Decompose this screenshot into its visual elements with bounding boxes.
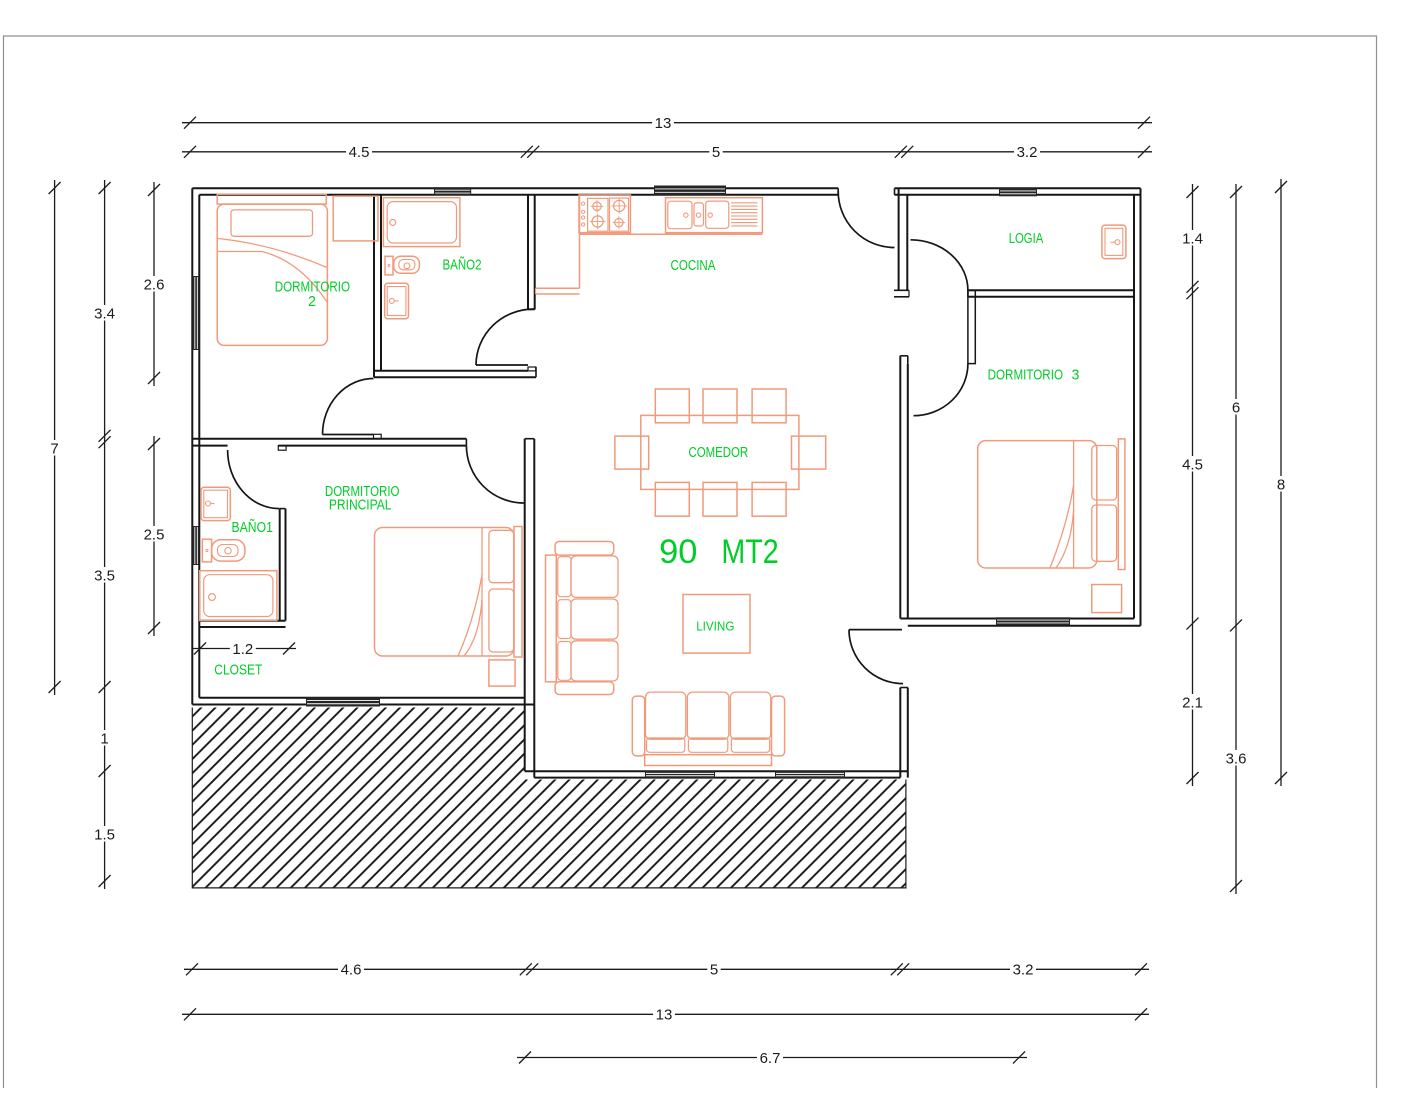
svg-text:4.6: 4.6 xyxy=(341,962,362,979)
svg-text:LOGIA: LOGIA xyxy=(1009,231,1044,247)
svg-text:1: 1 xyxy=(100,730,108,747)
svg-text:CLOSET: CLOSET xyxy=(214,663,262,679)
svg-text:1.4: 1.4 xyxy=(1182,230,1203,247)
svg-text:2: 2 xyxy=(308,294,316,310)
svg-text:2.1: 2.1 xyxy=(1182,694,1203,711)
svg-text:4.5: 4.5 xyxy=(1182,456,1203,473)
svg-text:3.5: 3.5 xyxy=(94,567,115,584)
svg-text:90: 90 xyxy=(659,533,697,571)
svg-text:3: 3 xyxy=(1072,368,1080,384)
svg-text:1.2: 1.2 xyxy=(232,641,253,658)
svg-text:3.2: 3.2 xyxy=(1017,144,1038,161)
svg-text:13: 13 xyxy=(655,115,672,132)
svg-text:13: 13 xyxy=(656,1007,673,1024)
svg-text:2.6: 2.6 xyxy=(144,276,165,293)
svg-text:LIVING: LIVING xyxy=(696,618,734,633)
svg-text:COMEDOR: COMEDOR xyxy=(688,445,748,461)
svg-text:2.5: 2.5 xyxy=(144,526,165,543)
svg-text:3.4: 3.4 xyxy=(94,305,115,322)
svg-text:1.5: 1.5 xyxy=(94,826,115,843)
svg-text:4.5: 4.5 xyxy=(349,144,370,161)
svg-text:6: 6 xyxy=(1232,399,1240,416)
svg-text:8: 8 xyxy=(1277,476,1285,493)
svg-text:MT2: MT2 xyxy=(721,533,778,571)
svg-text:COCINA: COCINA xyxy=(671,258,716,274)
svg-text:BAÑO2: BAÑO2 xyxy=(443,257,482,274)
svg-text:5: 5 xyxy=(712,144,720,161)
svg-text:BAÑO1: BAÑO1 xyxy=(232,519,273,536)
svg-text:3.6: 3.6 xyxy=(1226,750,1247,767)
svg-text:5: 5 xyxy=(710,962,718,979)
svg-text:DORMITORIO: DORMITORIO xyxy=(275,279,350,295)
svg-text:7: 7 xyxy=(50,440,58,457)
svg-text:DORMITORIO: DORMITORIO xyxy=(988,368,1063,384)
svg-text:6.7: 6.7 xyxy=(760,1050,781,1067)
svg-text:3.2: 3.2 xyxy=(1013,962,1034,979)
svg-text:PRINCIPAL: PRINCIPAL xyxy=(329,498,392,514)
